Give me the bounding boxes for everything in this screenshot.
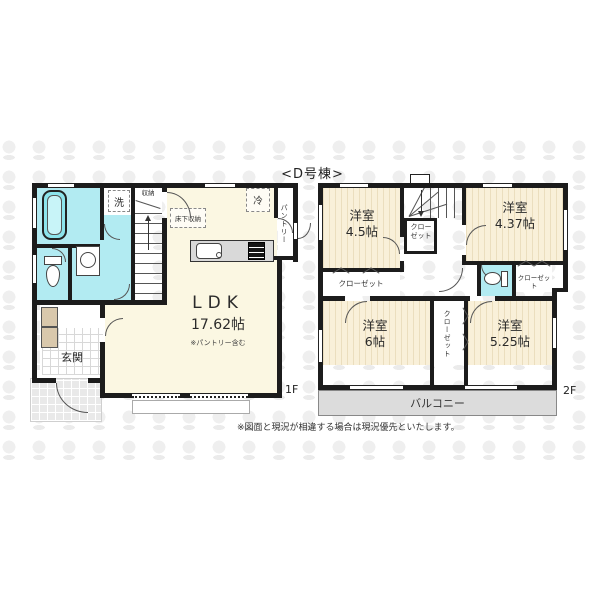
wall (100, 187, 104, 240)
bathtub (42, 190, 67, 240)
wall (370, 296, 470, 301)
window (318, 330, 323, 362)
window (32, 198, 37, 228)
folding-door-mark (518, 259, 534, 267)
wall (100, 342, 105, 398)
ldk-note: ※パントリー含む (158, 339, 278, 348)
room-sw-label: 洋室 6帖 (338, 318, 412, 351)
folding-door-mark (534, 259, 550, 267)
stairs-arrow-line2 (421, 190, 422, 212)
wash-basin (80, 252, 96, 268)
wall (318, 296, 345, 301)
folding-door-mark (363, 266, 379, 274)
fridge-box: 冷 (246, 188, 270, 212)
window (552, 318, 557, 348)
floor1-tag: 1F (285, 383, 298, 396)
stove (248, 242, 265, 260)
ldk-label-group: LDK 17.62帖 ※パントリー含む (158, 292, 278, 348)
room-nw-size: 4.5帖 (325, 224, 399, 240)
wall (162, 183, 167, 192)
shutter-box (132, 400, 250, 414)
room-sw-name: 洋室 (338, 318, 412, 334)
wall (404, 218, 437, 221)
wall (37, 378, 56, 383)
stairs-arrow-up (145, 215, 151, 221)
wall (88, 378, 102, 383)
balcony-label: バルコニー (410, 395, 465, 411)
window (132, 393, 180, 398)
wall (400, 261, 404, 272)
floor2-tag: 2F (563, 384, 576, 397)
folding-door-mark (462, 308, 470, 324)
hall-door-arc2 (439, 268, 463, 292)
closet-nw-label: クローゼット (324, 279, 398, 289)
wall (162, 218, 167, 300)
room-se-name: 洋室 (472, 318, 548, 334)
balcony: バルコニー (318, 390, 557, 416)
room-ne-label: 洋室 4.37帖 (473, 200, 557, 233)
disclaimer-text: ※図面と現況が相違する場合は現況優先といたします。 (237, 420, 460, 433)
toilet2-bowl (484, 272, 501, 285)
window (318, 205, 323, 240)
wall (274, 256, 298, 260)
folding-door-mark (333, 266, 349, 274)
closet-center-label: クローゼット (442, 308, 451, 360)
room-nw-name: 洋室 (325, 208, 399, 224)
closet-under-stairs-label: クローゼット (408, 223, 434, 241)
entrance-label: 玄関 (47, 351, 97, 365)
room-sw-size: 6帖 (338, 334, 412, 350)
window (340, 183, 368, 188)
wall (430, 301, 434, 385)
wall (477, 265, 481, 296)
wall (462, 187, 466, 225)
stair-storage-label: 収納 (134, 189, 162, 197)
wall (495, 296, 557, 301)
room-nw-label: 洋室 4.5帖 (325, 208, 399, 241)
wall (404, 251, 437, 254)
ldk-size: 17.62帖 (158, 316, 278, 334)
floor2-plan: 洋室 4.5帖 洋室 4.37帖 洋室 6帖 洋室 5.25帖 クローゼット ク… (315, 180, 595, 430)
faucet (216, 252, 222, 258)
laundry-label: 洗 (114, 194, 124, 209)
room-ne-size: 4.37帖 (473, 216, 557, 232)
bathtub-inner (47, 195, 62, 235)
floorplan-page: <D号棟> (0, 0, 600, 600)
fridge-label: 冷 (253, 193, 263, 207)
stairs-arrow-down (418, 211, 424, 217)
wall (404, 218, 407, 254)
room-se-label: 洋室 5.25帖 (472, 318, 548, 351)
window (483, 183, 512, 188)
back-door-arc (298, 223, 311, 239)
room-se-size: 5.25帖 (472, 334, 548, 350)
floor1-plan: 収納 床下収納 冷 洗 パントリー LDK (30, 180, 315, 435)
room-ne-name: 洋室 (473, 200, 557, 216)
window (32, 255, 37, 283)
window (48, 183, 74, 188)
wall (100, 300, 105, 318)
toilet2-tank (501, 271, 508, 287)
laundry-box: 洗 (108, 190, 130, 212)
stairs-arrow-line (148, 220, 149, 250)
shoe-cabinet (41, 307, 58, 327)
wall (68, 248, 72, 300)
window (563, 210, 568, 250)
wall (434, 218, 437, 254)
shoe-cabinet (41, 327, 58, 348)
closet-ne-label: クローゼット (516, 274, 552, 291)
folding-door-mark (462, 334, 470, 350)
ldk-name: LDK (158, 292, 278, 314)
wall (274, 188, 278, 218)
window (190, 393, 248, 398)
window (205, 183, 235, 188)
